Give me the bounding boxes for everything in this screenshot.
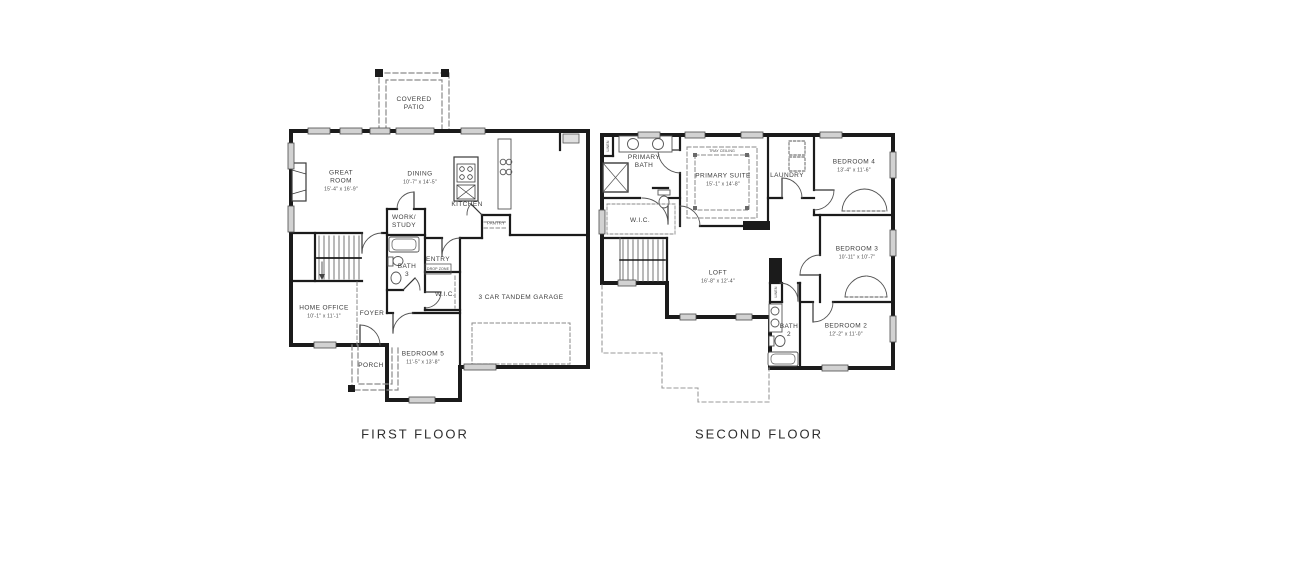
room-name: BEDROOM 3 [836, 245, 879, 253]
room-name: LAUNDRY [770, 172, 804, 180]
room-dims: 10'-1" x 11'-1" [299, 313, 349, 319]
room-label-bedroom-2: BEDROOM 2 12'-2" x 11'-0" [825, 322, 868, 337]
room-label-linen-hall: LINEN [774, 286, 778, 297]
room-dims: 10'-11" x 10'-7" [836, 254, 879, 260]
room-dims: 12'-2" x 11'-0" [825, 331, 868, 337]
room-name: 3 CAR TANDEM GARAGE [478, 294, 563, 302]
room-label-home-office: HOME OFFICE 10'-1" x 11'-1" [299, 304, 349, 319]
room-name: PANTRY [487, 220, 505, 225]
kitchen-island [454, 157, 478, 201]
room-label-linen-bath: LINEN [606, 140, 610, 151]
room-name: KITCHEN [451, 201, 482, 209]
floor-plan-page: COVERED PATIO GREAT ROOM 15'-4" x 16'-9"… [0, 0, 1297, 569]
kitchen-counter [498, 139, 512, 209]
room-label-dining: DINING 10'-7" x 14'-5" [403, 170, 437, 185]
first-floor-doors [360, 192, 482, 345]
second-floor-stairs [620, 238, 665, 283]
room-label-entry: ENTRY [426, 256, 450, 264]
room-label-kitchen: KITCHEN [451, 201, 482, 209]
room-label-wic-first: W.I.C. [435, 291, 455, 299]
first-floor-interior-walls [291, 131, 588, 367]
porch-post [348, 385, 355, 392]
room-label-loft: LOFT 16'-8" x 12'-4" [701, 269, 735, 284]
room-name: GREAT ROOM [324, 169, 358, 185]
room-label-primary-bath: PRIMARY BATH [628, 154, 660, 170]
room-label-great-room: GREAT ROOM 15'-4" x 16'-9" [324, 169, 358, 193]
room-dims: 15'-1" x 14'-8" [695, 181, 751, 187]
floor-plan-drawing [0, 0, 1297, 569]
room-name: BEDROOM 2 [825, 322, 868, 330]
room-name: FOYER [360, 310, 384, 318]
room-name: DINING [403, 170, 437, 178]
room-name: BEDROOM 4 [833, 158, 876, 166]
room-dims: 10'-7" x 14'-5" [403, 179, 437, 185]
water-heater-box [563, 134, 579, 143]
room-name: COVERED PATIO [397, 96, 432, 112]
wall-mass [769, 258, 782, 283]
bedroom4-closet [842, 189, 887, 211]
room-dims: 15'-4" x 16'-9" [324, 187, 358, 193]
bedroom3-closet [845, 276, 887, 297]
first-floor-title: FIRST FLOOR [361, 427, 469, 442]
room-label-foyer: FOYER [360, 310, 384, 318]
room-name: W.I.C. [435, 291, 455, 299]
room-name: W.I.C. [630, 217, 650, 225]
room-dims: 11'-5" x 13'-8" [402, 359, 445, 365]
wall-mass [743, 221, 770, 230]
room-name: PRIMARY BATH [628, 154, 660, 170]
room-name: LINEN [774, 286, 778, 297]
room-label-bedroom-5: BEDROOM 5 11'-5" x 13'-8" [402, 350, 445, 365]
patio-post [441, 69, 449, 77]
room-label-bath-2: BATH 2 [780, 323, 798, 339]
room-label-pantry: PANTRY [487, 220, 505, 225]
room-name: BEDROOM 5 [402, 350, 445, 358]
room-label-garage: 3 CAR TANDEM GARAGE [478, 294, 563, 302]
room-name: PORCH [358, 362, 383, 370]
room-label-primary-suite: PRIMARY SUITE 15'-1" x 14'-8" [695, 172, 751, 187]
room-label-bath-3: BATH 3 [398, 263, 416, 279]
room-label-laundry: LAUNDRY [770, 172, 804, 180]
patio-post [375, 69, 383, 77]
room-name: LINEN [606, 140, 610, 151]
room-name: BATH 3 [398, 263, 416, 279]
roof-outline-dashed [602, 285, 769, 402]
room-name: TRAY CEILING [709, 149, 735, 153]
room-label-bedroom-4: BEDROOM 4 13'-4" x 11'-6" [833, 158, 876, 173]
second-floor-title: SECOND FLOOR [695, 427, 823, 442]
room-label-tray-ceiling: TRAY CEILING [709, 149, 735, 153]
room-dims: 13'-4" x 11'-6" [833, 167, 876, 173]
room-label-bedroom-3: BEDROOM 3 10'-11" x 10'-7" [836, 245, 879, 260]
room-name: DROP ZONE [427, 267, 449, 271]
room-name: LOFT [701, 269, 735, 277]
room-name: BATH 2 [780, 323, 798, 339]
room-label-porch: PORCH [358, 362, 383, 370]
room-label-work-study: WORK/ STUDY [392, 214, 416, 230]
room-label-drop-zone: DROP ZONE [427, 267, 449, 271]
room-name: PRIMARY SUITE [695, 172, 751, 180]
room-label-covered-patio: COVERED PATIO [397, 96, 432, 112]
room-name: ENTRY [426, 256, 450, 264]
washer-dryer [789, 141, 805, 171]
room-name: HOME OFFICE [299, 304, 349, 312]
room-name: WORK/ STUDY [392, 214, 416, 230]
first-floor-stairs [317, 236, 361, 280]
room-label-wic-second: W.I.C. [630, 217, 650, 225]
room-dims: 16'-8" x 12'-4" [701, 278, 735, 284]
